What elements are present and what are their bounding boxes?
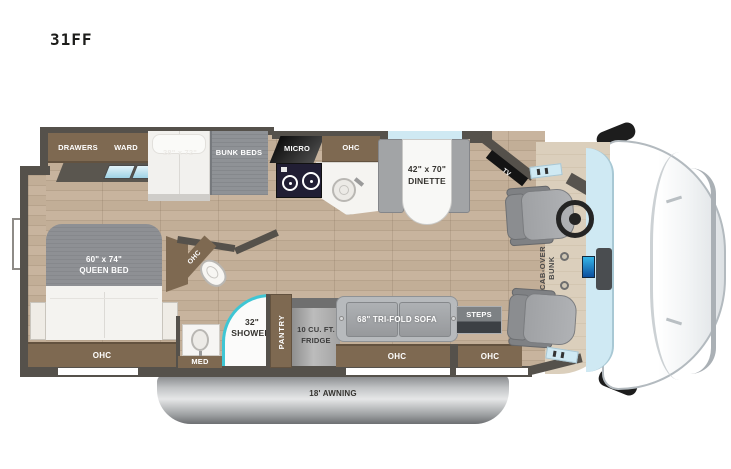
drawers-label: DRAWERS bbox=[52, 142, 104, 154]
bunk-dim-label: 28" x 72" bbox=[150, 147, 210, 159]
nightstand-left bbox=[30, 302, 46, 340]
queen-bed: 60" x 74" QUEEN BED bbox=[46, 224, 162, 340]
cab-hood bbox=[602, 140, 726, 390]
dinette-dim-label: 42" x 70" bbox=[403, 164, 451, 176]
entry-ohc-label: OHC bbox=[458, 346, 522, 367]
center-console bbox=[596, 248, 612, 290]
fridge-label-1: 10 CU. FT. bbox=[292, 325, 340, 336]
fridge-top bbox=[292, 298, 340, 308]
med-label: MED bbox=[178, 356, 222, 368]
pantry-label: PANTRY bbox=[276, 297, 288, 367]
vanity-sink bbox=[191, 329, 209, 351]
bunk-footboard bbox=[148, 194, 210, 201]
bedroom-ohc-label: OHC bbox=[28, 344, 176, 367]
vanity bbox=[182, 324, 220, 356]
pantry: PANTRY bbox=[270, 294, 292, 368]
cooktop-burner-icon bbox=[282, 175, 298, 191]
cab-over-line2: BUNK bbox=[548, 256, 557, 280]
microwave: MICRO bbox=[270, 136, 325, 163]
bunk-bed-upper bbox=[210, 131, 268, 195]
front-cap-edge bbox=[690, 168, 716, 374]
steering-wheel bbox=[556, 200, 594, 238]
cooktop-burner-icon-2 bbox=[302, 172, 320, 190]
sofa-label: 68" TRI-FOLD SOFA bbox=[337, 314, 457, 326]
kitchen-ohc: OHC bbox=[322, 136, 380, 163]
steps-label: STEPS bbox=[457, 309, 501, 321]
bunk-label: BUNK BEDS bbox=[210, 147, 268, 159]
queen-bedding bbox=[46, 286, 162, 340]
rv-floorplan: 31FF 18' AWNING TV DRAWERS WARD bbox=[0, 0, 731, 469]
drawers-ward-cabinet: DRAWERS WARD bbox=[48, 133, 148, 163]
cooktop bbox=[276, 163, 322, 198]
med-cabinet: MED bbox=[178, 356, 222, 368]
awning: 18' AWNING bbox=[157, 374, 509, 424]
cooktop-control-icon bbox=[281, 167, 287, 172]
ward-label: WARD bbox=[106, 142, 146, 154]
entry-door-opening bbox=[456, 368, 528, 375]
bottom-window-left bbox=[58, 368, 138, 375]
sofa-ohc: OHC bbox=[336, 344, 458, 367]
dinette-window bbox=[388, 131, 462, 139]
cabinet-angled-front bbox=[56, 163, 162, 182]
queen-dim-label: 60" x 74" bbox=[46, 254, 162, 265]
cab-over-bunk-label: CAB-OVER BUNK bbox=[534, 236, 562, 300]
sink-drain-icon bbox=[339, 185, 349, 195]
drawer-front-1 bbox=[103, 165, 135, 179]
queen-label: QUEEN BED bbox=[46, 265, 162, 276]
micro-label: MICRO bbox=[275, 136, 319, 163]
kitchen-sink bbox=[332, 178, 356, 202]
fridge-label-2: FRIDGE bbox=[292, 336, 340, 347]
bunk-bed-lower bbox=[148, 131, 210, 201]
ohc-divider-wall bbox=[450, 344, 458, 367]
bottom-window-center bbox=[346, 368, 450, 375]
trifold-sofa: 68" TRI-FOLD SOFA bbox=[336, 296, 458, 342]
dinette-table: 42" x 70" DINETTE bbox=[402, 139, 452, 225]
awning-label: 18' AWNING bbox=[157, 388, 509, 400]
console-screen bbox=[582, 256, 595, 278]
rear-wall bbox=[20, 166, 28, 377]
fridge: 10 CU. FT. FRIDGE bbox=[292, 308, 340, 366]
bedroom-ohc: OHC bbox=[28, 342, 176, 367]
shower-dim-label: 32" bbox=[235, 317, 269, 328]
sofa-ohc-label: OHC bbox=[336, 346, 458, 367]
floorplan-title: 31FF bbox=[50, 30, 93, 49]
entry-steps: STEPS bbox=[456, 306, 502, 334]
kitchen-ohc-label: OHC bbox=[322, 136, 380, 161]
dinette-label: DINETTE bbox=[403, 176, 451, 188]
dinette-bench-left bbox=[378, 139, 404, 213]
